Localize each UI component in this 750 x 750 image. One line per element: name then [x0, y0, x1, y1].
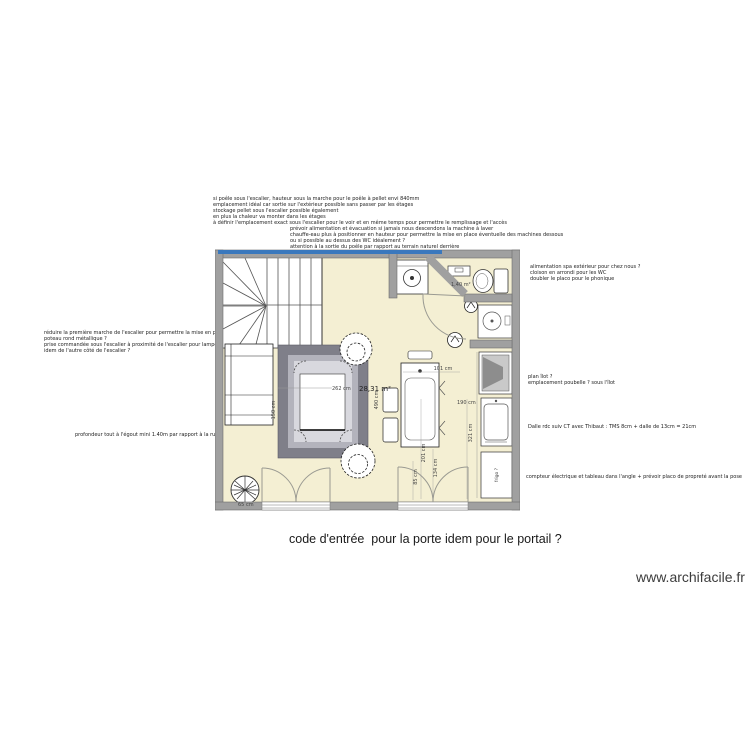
- floor-plan-canvas[interactable]: frigo ?: [215, 249, 520, 511]
- kitchen-units[interactable]: frigo ?: [477, 352, 512, 498]
- wall-basin-bottom[interactable]: [470, 340, 512, 348]
- room-area-label: 28,31 m²: [359, 385, 391, 393]
- rotate-handle-icon[interactable]: [448, 333, 463, 348]
- note-pellet-stove[interactable]: si poêle sous l'escalier, hauteur sous l…: [213, 196, 507, 226]
- chair[interactable]: [383, 418, 398, 442]
- note-slab[interactable]: Dalle rdc suiv CT avec Thibaut : TMS 8cm…: [528, 424, 696, 430]
- dim-150: 150 cm: [271, 401, 277, 420]
- wall-wc-bottom[interactable]: [464, 294, 512, 302]
- round-armchair[interactable]: [341, 444, 375, 478]
- dim-490: 490 cm: [374, 391, 380, 410]
- wc-area-label: 1,40 m²: [451, 282, 471, 288]
- note-line: compteur électrique et tableau dans l'an…: [526, 474, 742, 480]
- entry-code-caption[interactable]: code d'entrée pour la porte idem pour le…: [289, 532, 562, 546]
- wall-left[interactable]: [215, 250, 223, 510]
- oven-unit[interactable]: [479, 352, 512, 394]
- dim-101: 101 cm: [434, 366, 453, 372]
- round-armchair[interactable]: [340, 333, 372, 365]
- note-line: emplacement poubelle ? sous l'îlot: [528, 380, 615, 386]
- note-line: profondeur tout à l'égout mini 1.40m par…: [75, 432, 218, 438]
- washbasin-unit[interactable]: [478, 305, 512, 338]
- french-door-opening[interactable]: [398, 502, 468, 510]
- dim-65: 65 cm: [238, 502, 254, 508]
- dim-85: 85 cm: [413, 469, 419, 485]
- fridge-unit[interactable]: frigo ?: [481, 452, 512, 498]
- note-line: doubler le placo pour le phonique: [530, 276, 640, 282]
- sofa[interactable]: [225, 344, 273, 425]
- note-washing-machine[interactable]: prévoir alimentation et évacuation si ja…: [290, 226, 563, 250]
- dim-321: 321 cm: [468, 424, 474, 443]
- note-island[interactable]: plan îlot ? emplacement poubelle ? sous …: [528, 374, 615, 386]
- selected-wall-highlight[interactable]: [218, 250, 442, 254]
- note-spa-wc[interactable]: alimentation spa extérieur pour chez nou…: [530, 264, 640, 282]
- dim-190: 190 cm: [457, 400, 476, 406]
- note-line: Dalle rdc suiv CT avec Thibaut : TMS 8cm…: [528, 424, 696, 430]
- wall-niche[interactable]: [389, 250, 397, 298]
- dim-201: 201 cm: [421, 444, 427, 463]
- staircase[interactable]: [223, 258, 322, 348]
- dim-134: 134 cm: [433, 459, 439, 478]
- wall-right[interactable]: [512, 250, 520, 510]
- wc-shelf[interactable]: [448, 266, 470, 276]
- archifacile-watermark: www.archifacile.fr: [636, 569, 745, 585]
- note-electric-meter[interactable]: compteur électrique et tableau dans l'an…: [526, 474, 742, 480]
- dim-262: 262 cm: [332, 386, 351, 392]
- plant[interactable]: [231, 476, 259, 504]
- wall-bottom[interactable]: [215, 502, 520, 510]
- washing-machine[interactable]: [396, 260, 428, 294]
- french-door-opening[interactable]: [262, 502, 330, 510]
- fridge-label: frigo ?: [494, 467, 500, 482]
- sink-unit[interactable]: [481, 398, 512, 446]
- note-sewer-depth[interactable]: profondeur tout à l'égout mini 1.40m par…: [75, 432, 218, 438]
